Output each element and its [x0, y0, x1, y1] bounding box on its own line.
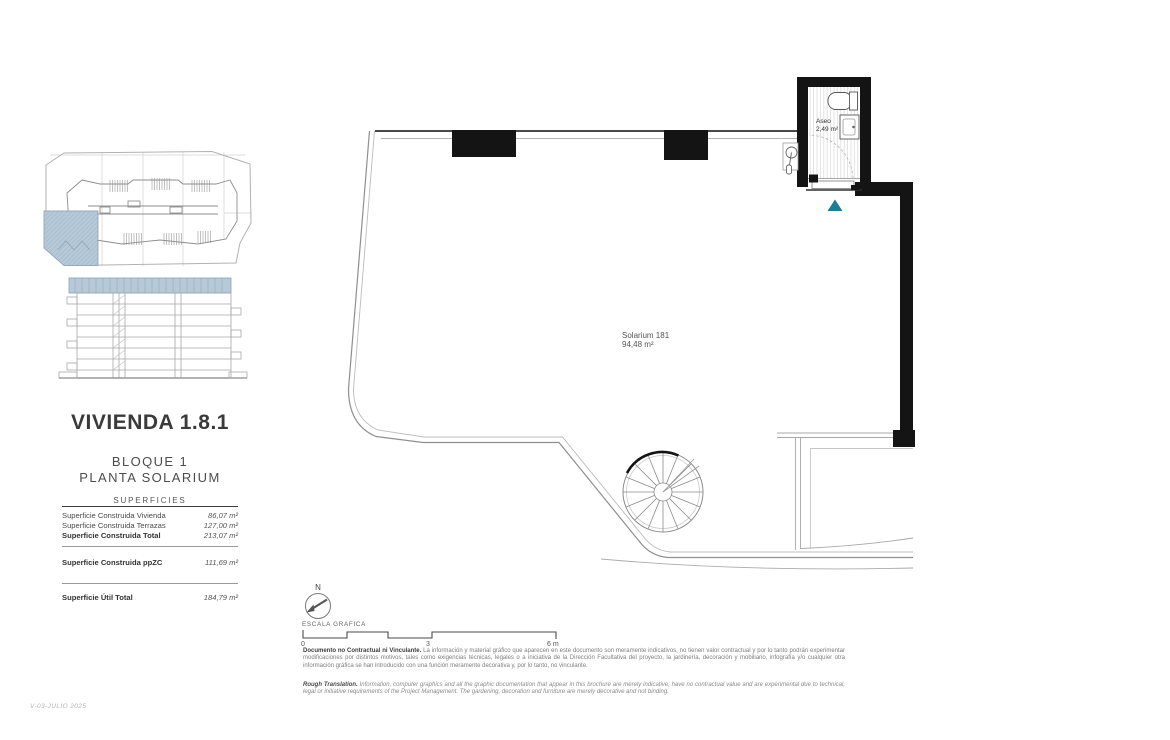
- table-row: Superficie Construida Total 213,07 m²: [62, 531, 238, 541]
- elevation-lines: [59, 293, 247, 378]
- keyplan-balcony-hatches: [110, 178, 211, 245]
- room-area: 2,49 m²: [816, 126, 838, 134]
- floor-name: PLANTA SOLARIUM: [40, 470, 260, 486]
- surface-value: 111,69 m²: [205, 558, 238, 568]
- surface-label: Superficie Construida ppZC: [62, 558, 162, 568]
- surface-value: 127,00 m²: [204, 521, 238, 531]
- table-row: Superficie Construida Vivienda 86,07 m²: [62, 511, 238, 521]
- floor-plan-drawing: [330, 60, 950, 590]
- block-subtitle: BLOQUE 1 PLANTA SOLARIUM: [40, 454, 260, 485]
- entrance-marker: [828, 200, 843, 212]
- scale-tick: 3: [426, 641, 430, 648]
- lower-terrace-boundary: [777, 433, 913, 550]
- door-leaf: [812, 181, 854, 189]
- elevation-solarium-highlight: [69, 278, 231, 293]
- surface-value: 86,07 m²: [208, 511, 238, 521]
- toilet-icon: [828, 92, 858, 110]
- table-row: Superficie Construida ppZC 111,69 m²: [62, 558, 238, 568]
- keyplan-highlighted-unit: [44, 211, 98, 266]
- scale-tick: 0: [301, 641, 305, 648]
- disclaimer-es-title: Documento no Contractual ni Vinculante.: [303, 648, 421, 654]
- disclaimer-es: Documento no Contractual ni Vinculante. …: [303, 648, 845, 670]
- bathroom: [797, 77, 871, 190]
- scale-tick: 6 m: [547, 641, 559, 648]
- surfaces-table: Superficie Construida Vivienda 86,07 m² …: [62, 511, 238, 540]
- divider: [62, 546, 238, 547]
- surfaces-table-util: Superficie Útil Total 184,79 m²: [62, 593, 238, 603]
- north-arrow-icon: [306, 594, 331, 619]
- table-row: Superficie Construida Terrazas 127,00 m²: [62, 521, 238, 531]
- surface-label: Superficie Construida Vivienda: [62, 511, 166, 521]
- solarium-room-label: Solarium 181 94,48 m²: [622, 331, 669, 349]
- building-elevation-drawing: [57, 269, 249, 389]
- page-title: VIVIENDA 1.8.1: [40, 411, 260, 434]
- surface-label: Superficie Construida Terrazas: [62, 521, 166, 531]
- north-label: N: [310, 583, 326, 592]
- surface-value: 213,07 m²: [204, 531, 238, 541]
- surface-label: Superficie Útil Total: [62, 593, 133, 603]
- surfaces-table-ppzc: Superficie Construida ppZC 111,69 m²: [62, 558, 238, 568]
- table-row: Superficie Útil Total 184,79 m²: [62, 593, 238, 603]
- room-area: 94,48 m²: [622, 340, 669, 349]
- site-keyplan-drawing: [40, 149, 255, 269]
- spiral-staircase-icon: [623, 452, 703, 532]
- scale-caption: ESCALA GRAFICA: [302, 621, 366, 628]
- outdoor-shower-icon: [783, 143, 798, 174]
- room-name: Solarium 181: [622, 331, 669, 340]
- room-name: Aseo: [816, 118, 838, 126]
- disclaimer-en-body: Information, computer graphics and all t…: [303, 682, 845, 695]
- divider: [62, 583, 238, 584]
- version-label: V-03-JULIO 2025: [30, 703, 86, 710]
- brochure-page: VIVIENDA 1.8.1 BLOQUE 1 PLANTA SOLARIUM …: [0, 0, 1170, 740]
- surface-label: Superficie Construida Total: [62, 531, 161, 541]
- divider: [62, 506, 238, 507]
- legend-drawing: [296, 576, 566, 648]
- scale-bar: [303, 630, 556, 639]
- surfaces-heading: SUPERFICIES: [40, 496, 260, 505]
- disclaimer-en: Rough Translation. Information, computer…: [303, 682, 845, 697]
- bathroom-room-label: Aseo 2,49 m²: [816, 118, 838, 133]
- block-name: BLOQUE 1: [40, 454, 260, 470]
- disclaimer-en-title: Rough Translation.: [303, 682, 358, 688]
- sink-icon: [840, 115, 859, 139]
- surface-value: 184,79 m²: [204, 593, 238, 603]
